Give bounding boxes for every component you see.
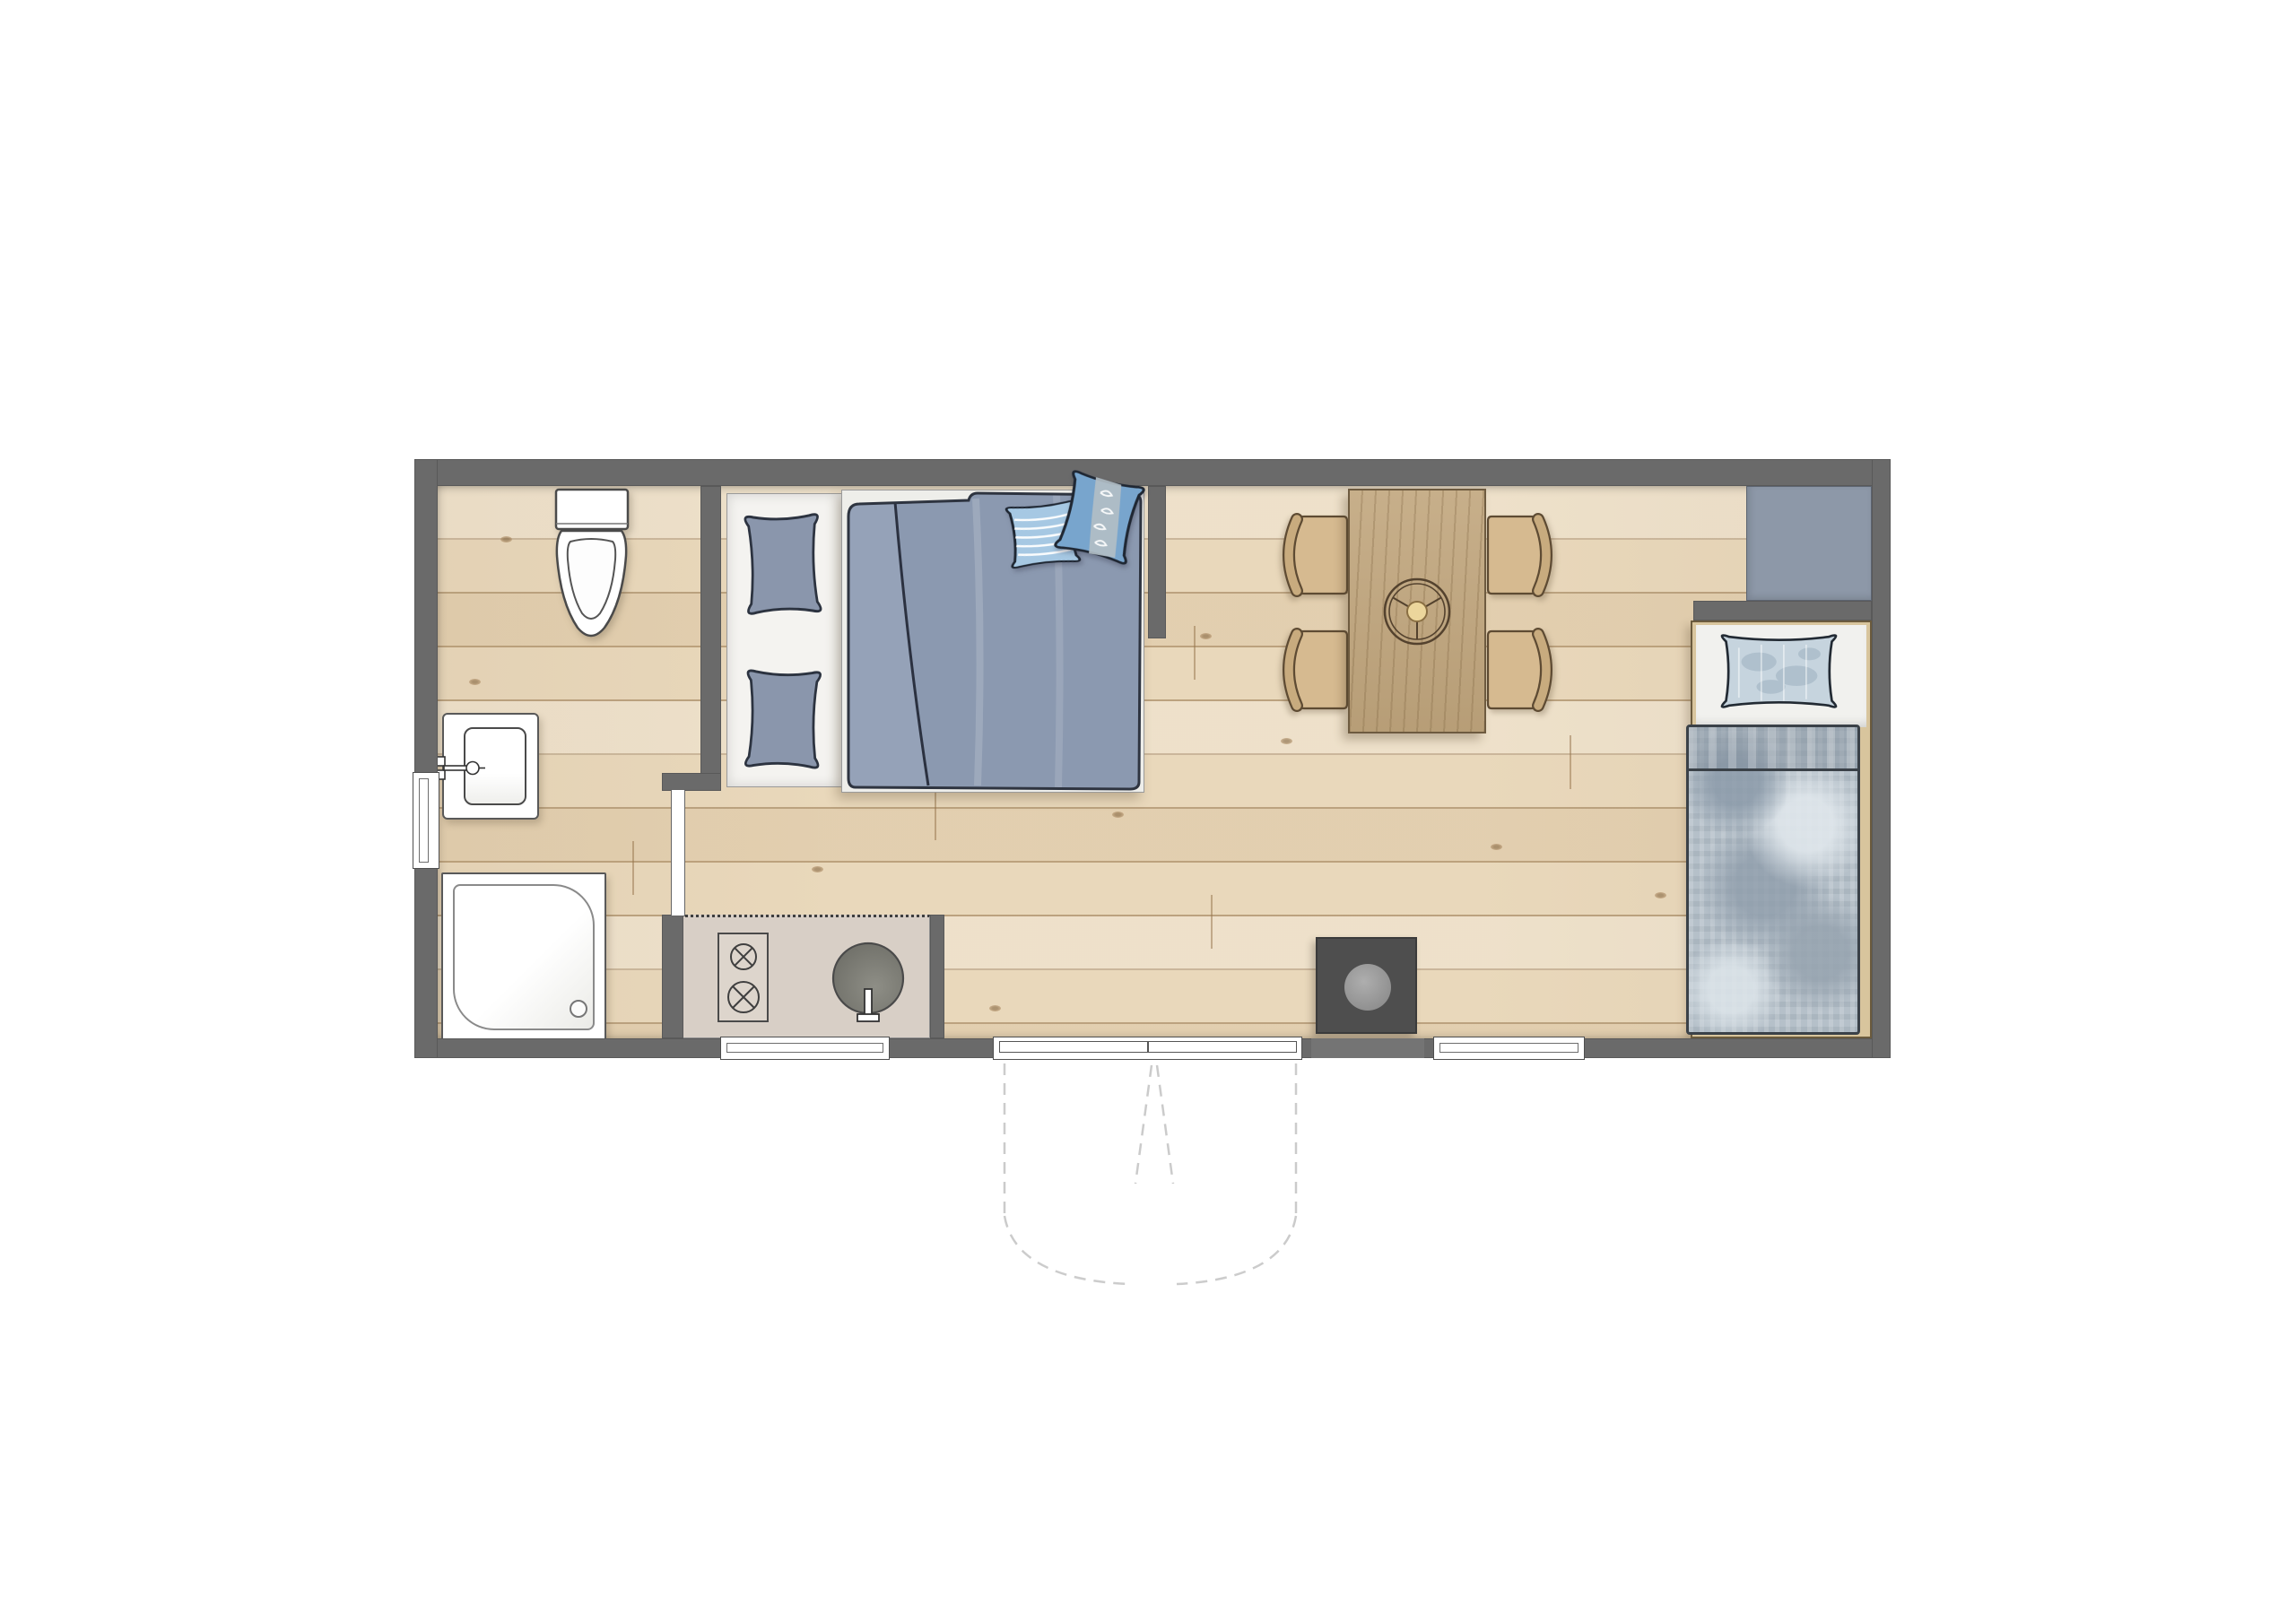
bathroom-sink [442,713,539,820]
kitchen-sink [833,943,903,1021]
window-pane [419,778,429,863]
door-leaf-right [1148,1041,1297,1053]
wood-knot [1491,844,1502,850]
wood-knot [1200,633,1212,639]
wood-knot [812,866,823,872]
shower [441,872,606,1042]
single-bed-blanket [1686,725,1860,1035]
window-pane [726,1043,883,1053]
window-pane [1439,1043,1578,1053]
closet-nook-wall [1693,601,1872,621]
table-centerpiece-icon [1383,577,1451,646]
hob-and-sink-graphic [681,917,929,1037]
stove-hearth [1311,1038,1424,1058]
wood-stove [1316,937,1417,1034]
plank-seam [632,841,634,895]
wood-knot [1281,738,1292,744]
wood-knot [1655,892,1666,898]
plank-seam [935,789,936,840]
wood-knot [989,1005,1001,1011]
counter-end-wall-left [662,915,683,1038]
bathroom-partition-wall [700,486,721,791]
stove-flue-icon [1344,964,1391,1011]
exterior-wall-top [414,459,1891,486]
exterior-wall-left [414,459,438,1058]
dining-chair [1277,510,1349,600]
dining-chair [1277,625,1349,715]
wood-knot [500,536,512,542]
hob-burners [718,933,768,1021]
plank-seam [1570,735,1571,789]
dining-chair [1486,625,1558,715]
plank-seam [1211,895,1213,949]
counter-end-wall-right [930,915,944,1038]
left-wall-window [413,772,439,869]
toilet [547,488,637,649]
shower-drain-icon [570,1000,587,1018]
bathroom-door-leaf [671,789,685,916]
kitchen-window [720,1037,890,1060]
wood-knot [469,679,481,685]
bed-privacy-wall-stub [1148,486,1166,638]
plank-seam [1194,626,1196,680]
dining-chair [1486,510,1558,600]
bed-pillow [740,508,826,620]
wood-knot [1112,811,1124,818]
living-window [1433,1037,1585,1060]
exterior-wall-right [1872,459,1891,1058]
single-bed [1691,621,1872,1038]
door-leaf-left [999,1041,1148,1053]
entry-door-swing-arcs [0,0,2296,1623]
entry-double-door [993,1037,1302,1060]
closet [1746,486,1872,601]
blanket-fold-band [1689,727,1857,771]
sink-faucet-icon [431,756,487,781]
bed-pillow [740,664,825,774]
single-bed-pillow [1715,632,1843,710]
kitchen-counter [680,915,930,1038]
bathroom-wall-stub [662,773,721,791]
floor-plan-canvas [0,0,2296,1623]
